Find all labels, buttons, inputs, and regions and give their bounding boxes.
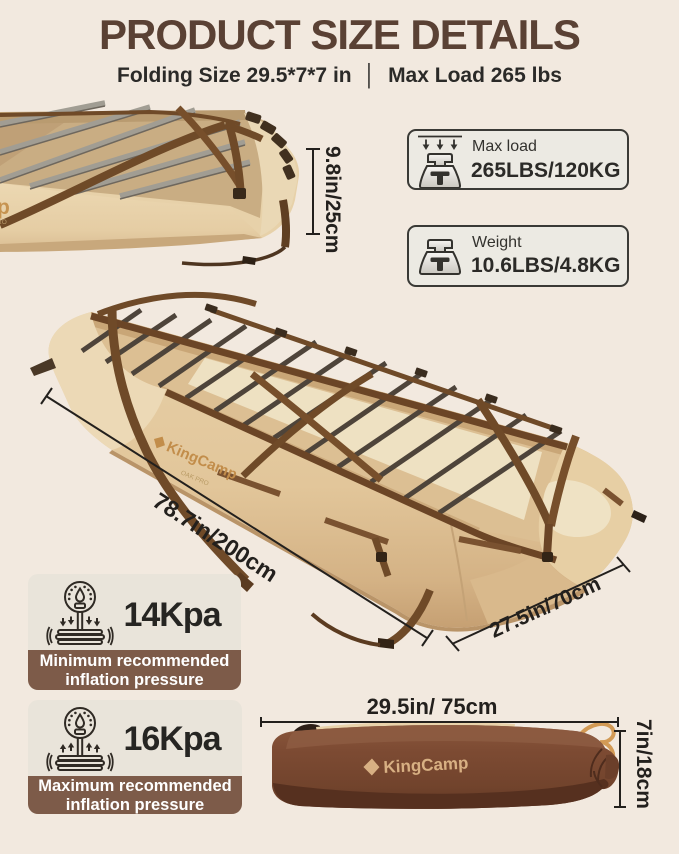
svg-text:p: p xyxy=(0,196,10,219)
svg-text:RO: RO xyxy=(0,219,7,226)
